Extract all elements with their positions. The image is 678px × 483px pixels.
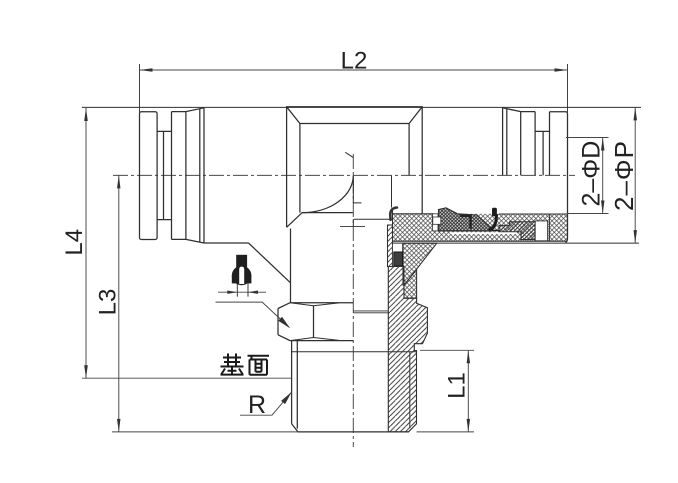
- svg-text:2–ΦP: 2–ΦP: [609, 140, 639, 211]
- svg-text:L3: L3: [95, 289, 122, 316]
- svg-text:2–ΦD: 2–ΦD: [578, 141, 606, 207]
- svg-text:L4: L4: [61, 229, 88, 256]
- svg-text:L1: L1: [444, 372, 471, 399]
- svg-text:R: R: [248, 391, 266, 419]
- svg-text:L2: L2: [341, 48, 368, 75]
